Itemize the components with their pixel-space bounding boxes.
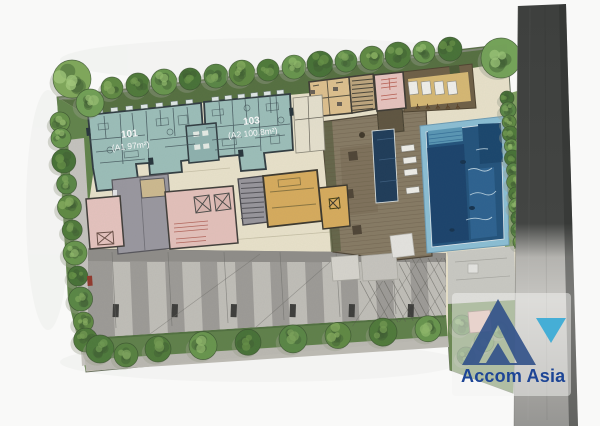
svg-text:Accom Asia: Accom Asia [461, 366, 566, 386]
